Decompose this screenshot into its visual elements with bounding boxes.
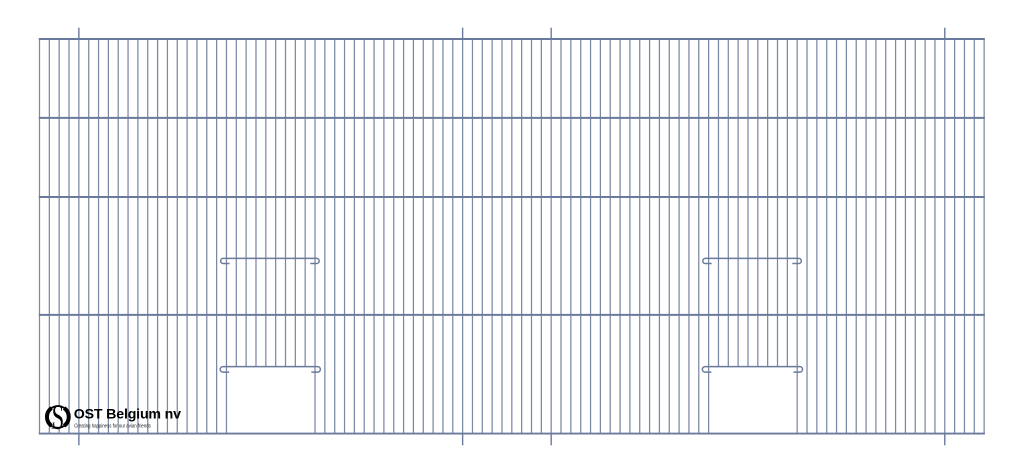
svg-text:J: J: [51, 421, 55, 431]
svg-text:Creating happiness for our avi: Creating happiness for our avian friends: [74, 423, 151, 429]
svg-text:OST Belgium nv: OST Belgium nv: [74, 406, 181, 422]
svg-text:S: S: [52, 398, 64, 438]
